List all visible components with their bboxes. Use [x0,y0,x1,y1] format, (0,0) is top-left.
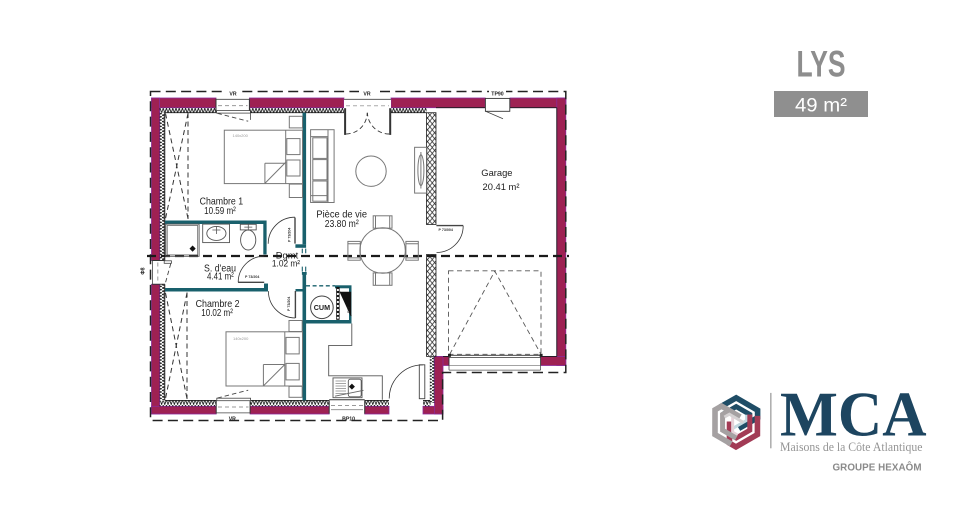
svg-text:Maisons de la Côte Atlantique: Maisons de la Côte Atlantique [780,440,923,454]
svg-text:4.41 m²: 4.41 m² [207,271,234,282]
svg-text:REF: REF [347,306,351,313]
svg-text:140x200: 140x200 [233,336,249,341]
svg-text:TP90: TP90 [491,91,504,97]
svg-text:Φ8: Φ8 [141,267,147,274]
svg-text:140x200: 140x200 [233,133,249,138]
svg-text:20.41 m²: 20.41 m² [483,182,520,193]
svg-text:CUM: CUM [314,303,330,312]
svg-text:1.02 m²: 1.02 m² [272,259,300,270]
svg-text:P 73/204: P 73/204 [245,275,259,279]
svg-text:MCA: MCA [780,378,927,449]
svg-text:VR: VR [229,416,236,422]
svg-text:VR: VR [229,91,236,97]
svg-text:P 73/204: P 73/204 [287,297,291,311]
svg-text:10.59 m²: 10.59 m² [204,205,236,217]
svg-text:VR: VR [363,91,370,97]
svg-text:LYS: LYS [797,44,846,85]
svg-text:10.02 m²: 10.02 m² [201,307,233,319]
svg-text:Garage: Garage [481,168,512,179]
svg-text:BP10: BP10 [342,416,355,422]
svg-text:P 73/204: P 73/204 [288,228,292,242]
svg-text:49 m²: 49 m² [795,96,847,117]
svg-text:P 73/004: P 73/004 [439,228,453,232]
svg-text:23.80 m²: 23.80 m² [325,218,359,230]
svg-text:GROUPE HEXAÔM: GROUPE HEXAÔM [833,462,922,474]
